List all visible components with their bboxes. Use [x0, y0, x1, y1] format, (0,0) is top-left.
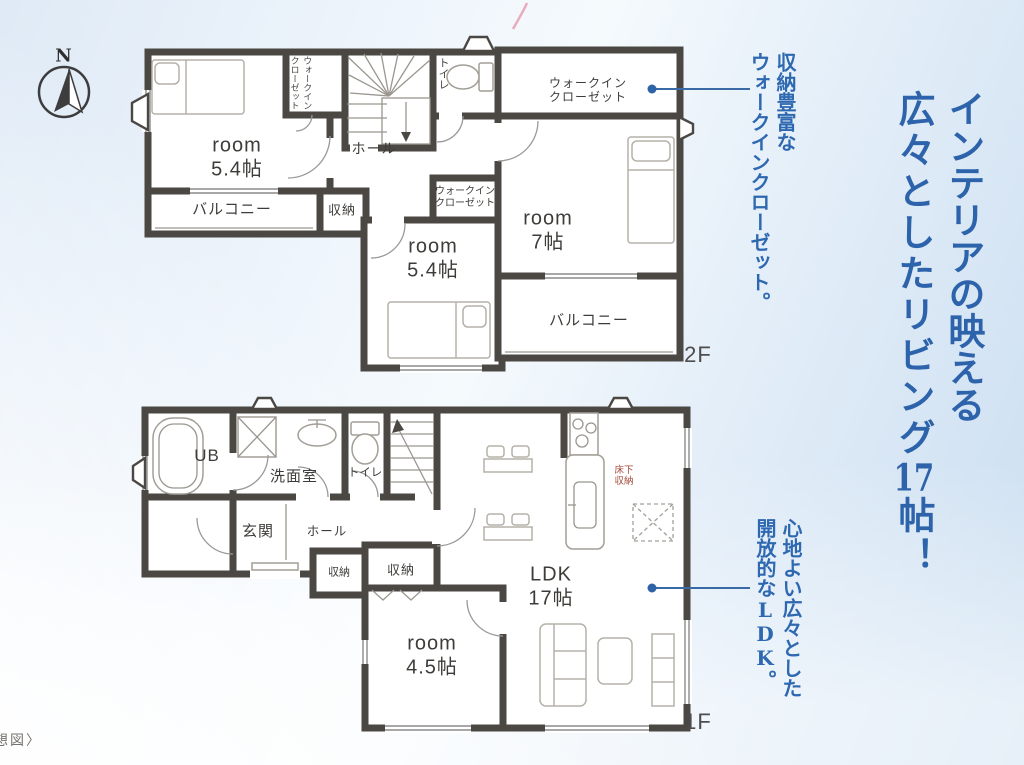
balcony-label-2f-right: バルコニー — [549, 312, 629, 330]
bay-window — [463, 37, 494, 51]
toilet-icon-2f — [447, 63, 493, 91]
caption-partial: 想図〉 — [0, 730, 42, 750]
entrance-label: 玄関 — [242, 523, 274, 541]
bay-window — [252, 398, 277, 409]
wic-label-2f-right: ウォークインクローゼット — [549, 76, 627, 104]
toilet-label-2f: トイレ — [435, 57, 451, 90]
hall-label-2f: ホール — [352, 141, 397, 158]
bay-window — [132, 94, 148, 130]
toilet-icon-1f — [351, 422, 379, 464]
ldk-label: LDK17帖 — [528, 563, 573, 610]
wic-label-2f-left: ウォークイン クローゼット — [288, 56, 313, 110]
compass-icon — [39, 67, 89, 117]
compass-north-label: N — [55, 45, 72, 66]
toilet-label-1f: トイレ — [348, 467, 383, 481]
floorplan-drawing — [0, 0, 1024, 765]
entrance-door — [252, 563, 298, 570]
storage-label-1f-large: 収納 — [387, 562, 415, 577]
floor-label-1f: 1F — [684, 709, 712, 735]
scan-artifact — [513, 3, 527, 29]
bay-window — [608, 398, 633, 409]
headline-vertical-text: インテリアの映える 広々としたリビング17帖！ — [888, 90, 988, 655]
floor1-plan — [133, 398, 750, 733]
bay-window — [679, 117, 693, 140]
room-label-2f-bedroom1: room5.4帖 — [211, 134, 263, 181]
washroom-label: 洗面室 — [270, 468, 318, 486]
washer-icon — [238, 417, 276, 457]
bay-window — [133, 458, 145, 488]
underfloor-storage-label: 床下収納 — [614, 465, 633, 487]
room-label-2f-bedroom3: room7帖 — [523, 207, 573, 254]
kitchen-counter-icon — [566, 455, 604, 549]
flyer-page: N room5.4帖 ウォークイン クローゼット トイレ ホール バルコニー 収… — [0, 0, 1024, 765]
room-label-2f-bedroom2: room5.4帖 — [407, 235, 459, 282]
room-label-1f-bedroom: room4.5帖 — [406, 632, 458, 679]
wic-label-2f-middle: ウォークインクローゼット — [435, 186, 495, 210]
hall-label-1f: ホール — [307, 525, 348, 540]
callout-text-wic: 収納豊富な ウォークインクローゼット。 — [746, 52, 798, 342]
stove-icon — [570, 413, 598, 455]
storage-label-2f: 収納 — [328, 202, 356, 217]
unit-bath-label: UB — [194, 446, 220, 466]
callout-text-ldk: 心地よい広々とした 開放的なLDK。 — [752, 518, 804, 733]
balcony-label-2f-left: バルコニー — [192, 201, 272, 219]
storage-label-1f-small: 収納 — [328, 567, 350, 580]
floor-label-2f: 2F — [684, 342, 712, 368]
